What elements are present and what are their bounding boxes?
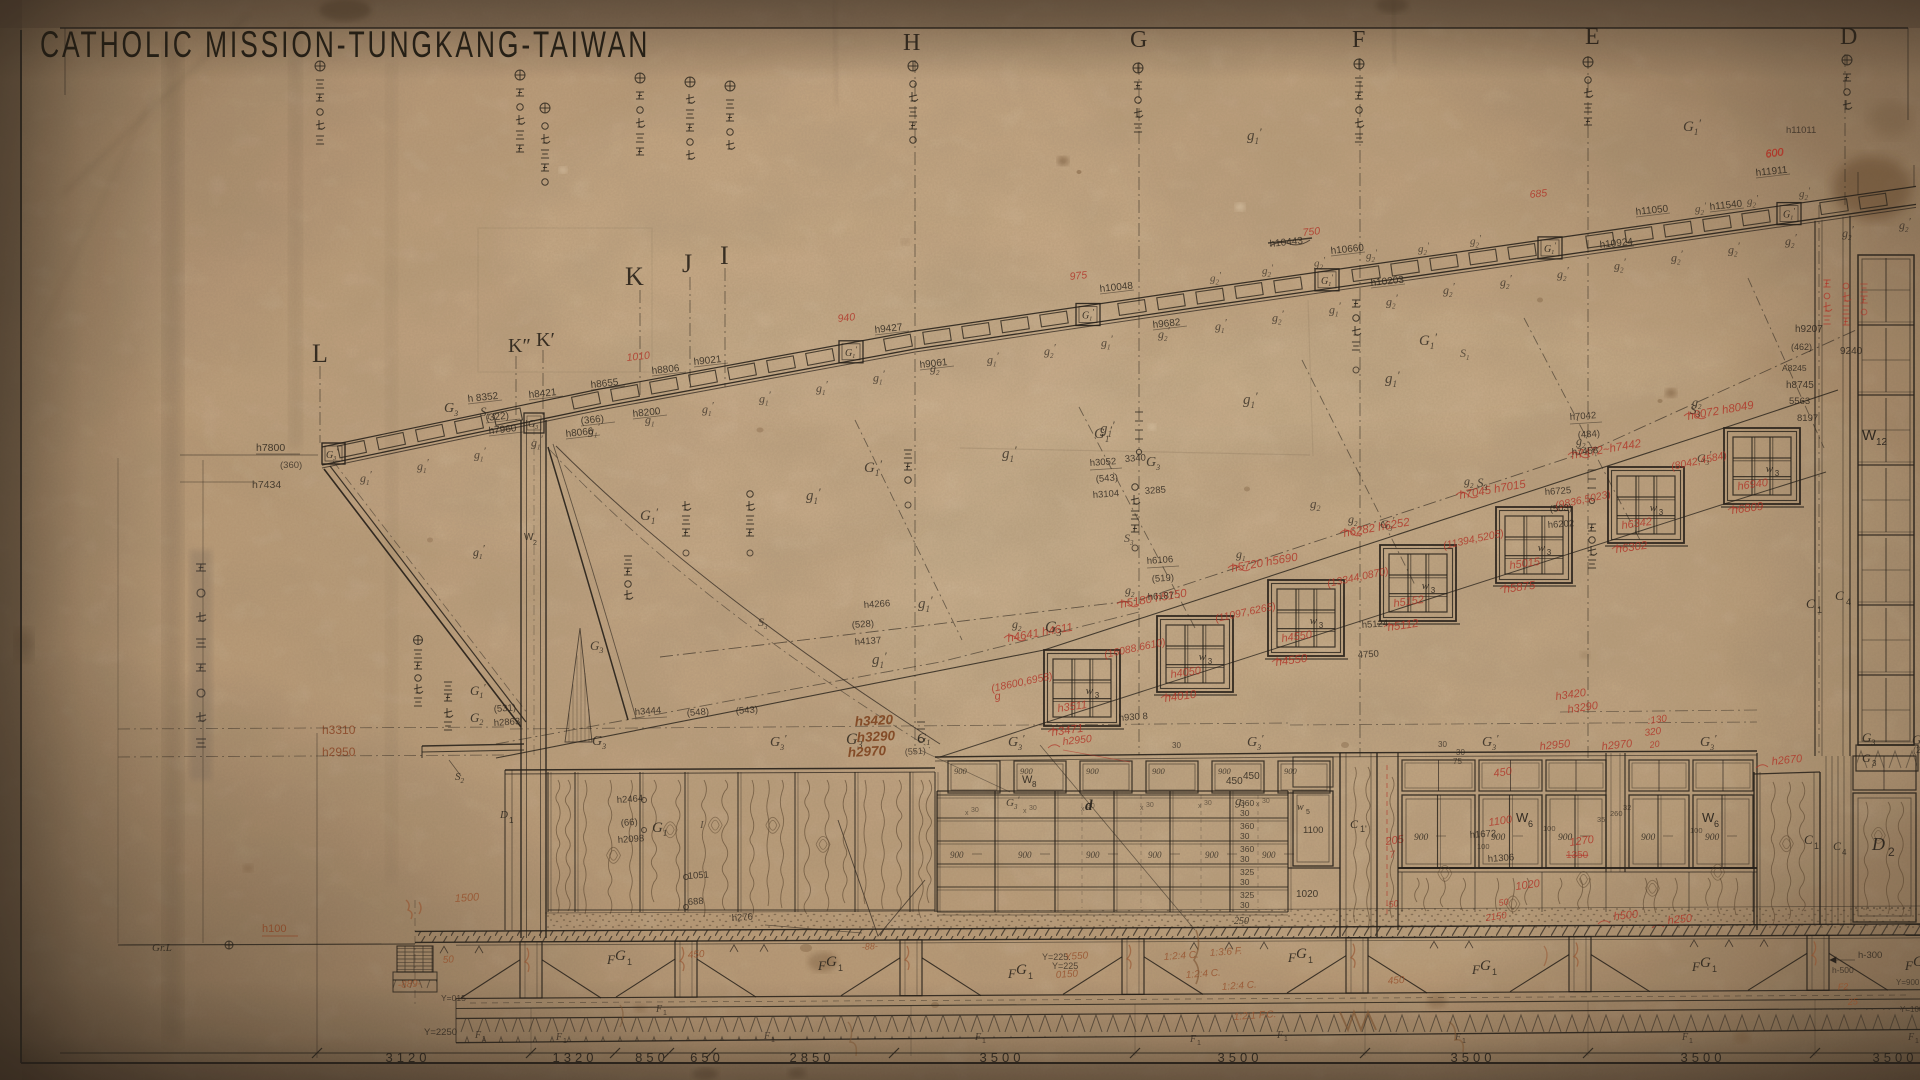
svg-text:h4137: h4137 (854, 635, 881, 648)
svg-text:1: 1 (563, 1038, 567, 1045)
svg-text:L: L (312, 339, 328, 368)
svg-text:1: 1 (1197, 1040, 1201, 1047)
svg-text:h6187: h6187 (1147, 590, 1174, 603)
svg-text:900: 900 (1205, 850, 1219, 860)
svg-text:900: 900 (1086, 850, 1100, 860)
svg-text:h7800: h7800 (256, 442, 285, 454)
svg-text:900: 900 (1414, 833, 1429, 843)
svg-text:900: 900 (1284, 766, 1298, 776)
svg-text:5: 5 (1306, 809, 1310, 816)
svg-text:w: w (1422, 580, 1430, 592)
svg-text:1020: 1020 (1296, 889, 1319, 900)
svg-text:3500: 3500 (1451, 1050, 1496, 1065)
svg-text:(462): (462) (1791, 342, 1812, 352)
svg-text:F: F (555, 1032, 563, 1043)
svg-text:260: 260 (1610, 809, 1623, 818)
svg-text:C: C (1806, 596, 1815, 611)
svg-text:50: 50 (1498, 897, 1509, 908)
svg-text:K′: K′ (536, 329, 555, 351)
svg-text:1: 1 (771, 1037, 775, 1044)
svg-text:685: 685 (1529, 187, 1548, 201)
svg-text:30: 30 (1172, 741, 1181, 750)
svg-text:1: 1 (482, 1036, 486, 1043)
svg-text:h-300: h-300 (1858, 950, 1882, 961)
svg-text:1: 1 (1689, 1038, 1693, 1045)
svg-text:h6106: h6106 (1146, 554, 1173, 567)
svg-text:x: x (965, 810, 969, 817)
svg-text:900: 900 (1152, 766, 1166, 776)
svg-text:x: x (1140, 805, 1144, 812)
svg-text:h6725: h6725 (1544, 485, 1571, 498)
svg-text:D: D (1840, 24, 1857, 50)
svg-text:C: C (1835, 588, 1844, 603)
svg-text:G: G (1862, 751, 1871, 765)
svg-text:35: 35 (1597, 815, 1605, 824)
svg-text:x: x (1198, 803, 1202, 810)
svg-text:F: F (974, 1032, 982, 1043)
svg-text:1: 1 (627, 957, 632, 967)
svg-text:1: 1 (1492, 967, 1497, 977)
svg-text:1320: 1320 (553, 1050, 598, 1065)
svg-text:250: 250 (1234, 916, 1249, 927)
svg-text:3: 3 (1431, 586, 1436, 595)
svg-text:1: 1 (1814, 841, 1819, 851)
svg-text:x: x (1081, 806, 1085, 813)
svg-text:30: 30 (1240, 831, 1250, 841)
svg-text:h2464: h2464 (616, 793, 643, 806)
svg-text:6: 6 (1714, 819, 1719, 829)
svg-text:w: w (1766, 463, 1774, 475)
svg-text:(543): (543) (1095, 472, 1118, 485)
svg-text:F: F (763, 1031, 771, 1042)
svg-text:12: 12 (1876, 437, 1888, 448)
svg-text:x: x (1023, 808, 1027, 815)
svg-text:(2: (2 (1913, 745, 1920, 755)
svg-text:450: 450 (1243, 771, 1260, 782)
svg-text:-889-: -889- (397, 978, 422, 991)
svg-text:w: w (1297, 802, 1304, 813)
svg-text:Y550: Y550 (1064, 950, 1089, 963)
svg-text:w: w (1538, 542, 1546, 554)
svg-text:900: 900 (1705, 833, 1720, 843)
svg-text:5563: 5563 (1789, 396, 1810, 407)
svg-text:K: K (625, 262, 644, 291)
svg-text:F: F (1189, 1034, 1197, 1045)
svg-text:h2863: h2863 (493, 716, 520, 729)
svg-text:(528): (528) (851, 618, 874, 631)
svg-text:(548): (548) (686, 706, 709, 719)
svg-text:3500: 3500 (1873, 1050, 1918, 1065)
svg-text:h3052: h3052 (1089, 456, 1116, 469)
svg-text:h-500: h-500 (1832, 965, 1854, 975)
svg-text:F: F (1276, 1030, 1284, 1041)
svg-text:30: 30 (1456, 748, 1465, 757)
svg-text:h3310: h3310 (322, 723, 356, 737)
svg-text:h3444: h3444 (634, 705, 661, 718)
svg-text:C: C (1804, 832, 1813, 847)
svg-text:1: 1 (1284, 1036, 1288, 1043)
svg-text:h3104: h3104 (1092, 488, 1119, 501)
svg-text:h11011: h11011 (1786, 125, 1816, 136)
svg-text:G: G (1016, 962, 1027, 978)
svg-text:F: F (655, 1004, 663, 1015)
svg-text:1051: 1051 (687, 870, 709, 882)
svg-text:8197: 8197 (1797, 413, 1818, 424)
svg-text:D: D (1871, 834, 1885, 854)
svg-text:h2950: h2950 (322, 745, 356, 759)
svg-text:450: 450 (1226, 776, 1243, 787)
svg-text:1: 1 (1028, 971, 1033, 981)
svg-text:W: W (1862, 427, 1877, 444)
svg-text:3500: 3500 (1681, 1050, 1726, 1065)
svg-text:D: D (499, 809, 508, 821)
svg-text:360: 360 (1240, 844, 1254, 854)
svg-text:Y=900: Y=900 (1896, 978, 1920, 987)
svg-text:h930 8: h930 8 (1118, 711, 1148, 724)
svg-text:900: 900 (1641, 833, 1656, 843)
svg-text:900: 900 (950, 850, 964, 860)
svg-text:1: 1 (1308, 955, 1313, 965)
svg-text:G: G (1296, 946, 1307, 962)
svg-text:450: 450 (1387, 975, 1405, 987)
svg-text:3: 3 (1095, 691, 1100, 700)
svg-text:32: 32 (1623, 803, 1631, 812)
svg-text:H: H (903, 30, 920, 56)
svg-text:h8745: h8745 (1786, 380, 1814, 391)
svg-text:x: x (1256, 801, 1260, 808)
svg-text:(484): (484) (1577, 428, 1600, 441)
svg-text:30: 30 (1029, 805, 1037, 812)
svg-text:1: 1 (509, 816, 514, 825)
svg-text:450: 450 (687, 949, 705, 961)
svg-text:J: J (682, 249, 692, 278)
svg-text:h7042: h7042 (1569, 410, 1596, 423)
svg-text:30: 30 (1262, 798, 1270, 805)
svg-text:100: 100 (1477, 842, 1490, 851)
svg-text:8: 8 (1032, 780, 1037, 789)
svg-text:30: 30 (1204, 800, 1212, 807)
svg-text:900: 900 (1148, 850, 1162, 860)
svg-text:G: G (1480, 958, 1491, 974)
svg-text:1: 1 (663, 1010, 667, 1017)
svg-text:(503): (503) (1549, 502, 1572, 515)
svg-text:9240: 9240 (1840, 346, 1863, 357)
svg-text:30: 30 (1240, 854, 1250, 864)
svg-text:3: 3 (1319, 621, 1324, 630)
svg-text:G: G (615, 948, 626, 964)
svg-text:25: 25 (1846, 996, 1859, 1007)
svg-text:2: 2 (1888, 845, 1895, 859)
svg-text:50: 50 (442, 954, 454, 966)
svg-text:900: 900 (1086, 766, 1100, 776)
svg-text:(543): (543) (735, 704, 758, 717)
svg-text:3340: 3340 (1124, 453, 1146, 465)
svg-text:30: 30 (1146, 802, 1154, 809)
svg-text:75: 75 (1453, 757, 1462, 766)
svg-text:2850: 2850 (790, 1050, 835, 1065)
svg-text:900: 900 (1018, 850, 1032, 860)
svg-text:30: 30 (971, 807, 979, 814)
svg-text:1': 1' (1360, 824, 1367, 834)
svg-text:688: 688 (687, 896, 704, 908)
svg-text:w: w (1086, 685, 1094, 697)
svg-text:1100: 1100 (1303, 825, 1323, 836)
svg-text:3500: 3500 (980, 1050, 1025, 1065)
svg-text:850: 850 (635, 1050, 669, 1065)
svg-text:1: 1 (982, 1038, 986, 1045)
svg-text:K″: K″ (508, 335, 531, 357)
svg-text:-88-: -88- (861, 941, 878, 952)
svg-text:3: 3 (1659, 508, 1664, 517)
svg-text:(519): (519) (1151, 572, 1174, 585)
svg-text:900: 900 (1262, 850, 1276, 860)
svg-text:0150: 0150 (1055, 968, 1078, 981)
svg-text:1:3:6 F.: 1:3:6 F. (1209, 946, 1242, 959)
svg-text:w: w (1199, 651, 1207, 663)
svg-text:3: 3 (1872, 759, 1877, 768)
svg-text:3500: 3500 (1218, 1050, 1263, 1065)
svg-text:4: 4 (1846, 597, 1851, 607)
svg-text:325: 325 (1240, 890, 1254, 900)
svg-text:975: 975 (1069, 269, 1088, 283)
svg-text:F2: F2 (1837, 981, 1848, 992)
svg-text:F: F (1681, 1032, 1689, 1043)
svg-text:h100: h100 (262, 923, 286, 935)
svg-text:30: 30 (1438, 740, 1447, 749)
svg-text:1: 1 (838, 963, 843, 973)
svg-text:600: 600 (1765, 146, 1784, 160)
svg-text:w: w (1310, 615, 1318, 627)
svg-text:940: 940 (837, 311, 856, 325)
svg-text:900: 900 (1218, 766, 1232, 776)
svg-text:Y=2250: Y=2250 (424, 1027, 457, 1038)
svg-text:w: w (1650, 502, 1658, 514)
svg-text:h7434: h7434 (252, 479, 281, 491)
svg-text:h1306: h1306 (1487, 852, 1514, 865)
svg-text:1010: 1010 (626, 350, 651, 364)
svg-text:CATHOLIC MISSION-TUNGKANG-TAIW: CATHOLIC MISSION-TUNGKANG-TAIWAN (40, 23, 650, 65)
svg-text:360: 360 (1240, 821, 1254, 831)
svg-text:(66): (66) (620, 817, 638, 829)
svg-text:C: C (1833, 839, 1842, 853)
svg-text:C: C (1350, 817, 1359, 831)
svg-text:F: F (474, 1030, 482, 1041)
svg-text:2: 2 (533, 540, 537, 547)
svg-text:h2098: h2098 (617, 833, 644, 846)
svg-text:G: G (1913, 954, 1920, 970)
svg-text:20: 20 (1648, 739, 1660, 750)
svg-text:3285: 3285 (1144, 485, 1166, 497)
svg-text:G: G (826, 954, 837, 970)
svg-text:h3290: h3290 (856, 728, 896, 745)
svg-text:h7458: h7458 (1571, 445, 1598, 458)
svg-text:30: 30 (1240, 877, 1250, 887)
svg-text:750: 750 (1302, 225, 1321, 239)
svg-text:h6202: h6202 (1547, 518, 1574, 531)
svg-text:4750: 4750 (1357, 649, 1379, 661)
svg-text:3: 3 (1208, 657, 1213, 666)
svg-text:30: 30 (1240, 900, 1250, 910)
svg-text:1: 1 (1817, 605, 1822, 615)
svg-text:650: 650 (690, 1050, 724, 1065)
svg-text:Gr.L: Gr.L (152, 942, 172, 954)
svg-text:100: 100 (1690, 826, 1703, 835)
svg-text:1350: 1350 (1566, 850, 1589, 861)
svg-text:G: G (1700, 955, 1711, 971)
svg-text:Y=1000: Y=1000 (1900, 1005, 1920, 1014)
svg-text:1500: 1500 (454, 891, 480, 905)
svg-text:h4266: h4266 (863, 598, 890, 611)
svg-text:4: 4 (1842, 848, 1847, 857)
svg-text:3: 3 (1775, 469, 1780, 478)
svg-text:6: 6 (1528, 819, 1533, 829)
svg-text:(531): (531) (493, 702, 516, 715)
svg-text:325: 325 (1240, 867, 1254, 877)
svg-text:3120: 3120 (386, 1050, 431, 1065)
svg-text:h276: h276 (731, 912, 753, 924)
svg-text:1: 1 (1915, 1038, 1919, 1045)
svg-text:Y=015: Y=015 (441, 993, 466, 1003)
svg-text:G: G (1130, 27, 1147, 53)
svg-text:A8245: A8245 (1782, 363, 1807, 373)
svg-text:(360): (360) (280, 460, 302, 471)
svg-text:1: 1 (1712, 964, 1717, 974)
svg-text:I: I (720, 241, 729, 270)
svg-text:h3420: h3420 (854, 712, 894, 729)
svg-text:100: 100 (1543, 824, 1556, 833)
svg-text:(551): (551) (904, 746, 926, 757)
svg-text:E: E (1585, 24, 1600, 50)
svg-text:h2970: h2970 (847, 743, 887, 760)
svg-text:h5124: h5124 (1361, 618, 1388, 631)
svg-text:F: F (1352, 27, 1365, 53)
svg-text:3: 3 (1547, 548, 1552, 557)
svg-text:h1672: h1672 (1469, 828, 1496, 841)
svg-text:F: F (1907, 1032, 1915, 1043)
